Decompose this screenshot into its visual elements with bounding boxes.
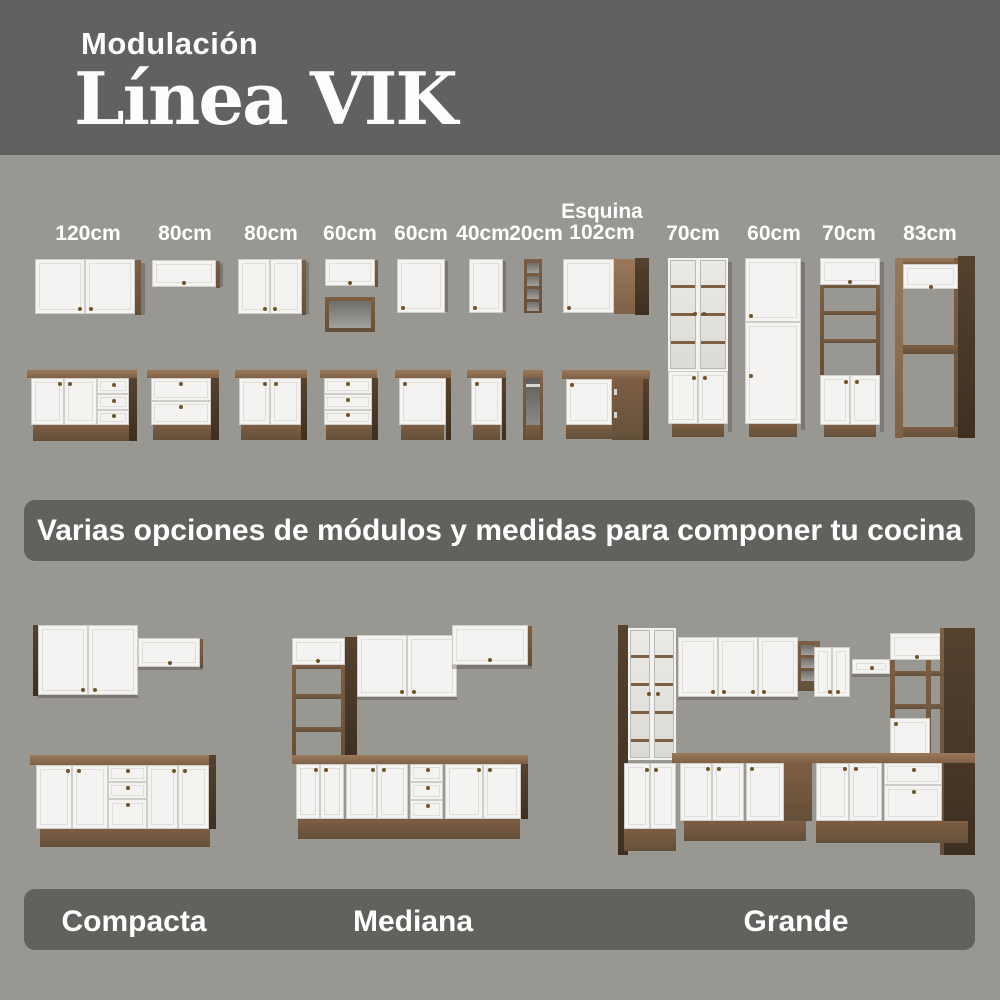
- knob: [762, 690, 766, 694]
- knob: [346, 398, 350, 402]
- knob: [567, 306, 571, 310]
- shadow: [452, 665, 532, 669]
- knob: [702, 312, 706, 316]
- knob: [717, 767, 721, 771]
- knob: [854, 767, 858, 771]
- shadow: [220, 263, 223, 287]
- wood-panel: [153, 425, 211, 440]
- tagline-text: Varias opciones de módulos y medidas par…: [24, 514, 975, 548]
- knob: [912, 768, 916, 772]
- wood-panel: [241, 425, 301, 440]
- knob: [722, 690, 726, 694]
- wood-panel: [824, 285, 876, 288]
- shadow: [880, 262, 884, 432]
- wood-panel: [523, 370, 543, 378]
- knob: [324, 768, 328, 772]
- wood-panel: [931, 704, 944, 709]
- wood-panel: [784, 763, 812, 821]
- cabinet-door: [563, 259, 614, 313]
- cabinet-door: [270, 259, 302, 314]
- knob: [488, 658, 492, 662]
- wood-panel: [931, 671, 944, 676]
- wood-panel: [526, 425, 540, 440]
- knob: [172, 769, 176, 773]
- cabinet-door: [377, 764, 408, 819]
- wood-panel: [467, 370, 506, 378]
- opening: [527, 302, 539, 311]
- knob: [848, 280, 852, 284]
- cabinet-door: [680, 763, 712, 821]
- cabinet-door: [178, 765, 209, 829]
- knob: [656, 692, 660, 696]
- cabinet-drawer: [410, 782, 443, 800]
- cabinet-door: [407, 635, 457, 697]
- knob: [654, 768, 658, 772]
- wood-panel: [296, 727, 341, 732]
- knob: [273, 307, 277, 311]
- knob: [401, 306, 405, 310]
- knob: [929, 285, 933, 289]
- knob: [382, 768, 386, 772]
- wood-panel: [209, 755, 216, 829]
- kitchen-label-mediana: Mediana: [353, 905, 473, 939]
- cabinet-door: [346, 764, 377, 819]
- wood-panel: [502, 378, 506, 440]
- knob: [179, 405, 183, 409]
- knob: [263, 307, 267, 311]
- cabinet-door: [816, 763, 849, 821]
- knob: [828, 690, 832, 694]
- cabinet-door: [745, 258, 801, 322]
- knob: [750, 767, 754, 771]
- knob: [912, 790, 916, 794]
- opening: [527, 276, 539, 286]
- knob: [58, 382, 62, 386]
- cabinet-door: [483, 764, 521, 819]
- wood-panel: [566, 425, 612, 439]
- cabinet-door: [147, 765, 178, 829]
- knob: [126, 786, 130, 790]
- knob: [426, 804, 430, 808]
- shadow: [306, 262, 309, 314]
- cabinet-drawer: [108, 765, 147, 782]
- cabinet-drawer: [324, 378, 372, 394]
- wood-panel: [200, 639, 203, 668]
- wood-panel: [684, 821, 806, 841]
- wood-panel: [401, 425, 444, 440]
- shadow: [678, 697, 798, 700]
- knob: [93, 688, 97, 692]
- wood-panel: [296, 694, 341, 699]
- shadow: [357, 697, 457, 700]
- knob: [274, 382, 278, 386]
- knob: [314, 768, 318, 772]
- opening: [329, 301, 371, 328]
- knob: [68, 382, 72, 386]
- wood-panel: [528, 626, 532, 666]
- wood-panel: [824, 339, 876, 343]
- cabinet-door: [758, 637, 798, 697]
- wood-panel: [672, 424, 724, 437]
- knob: [77, 769, 81, 773]
- cabinet-door: [650, 763, 676, 829]
- knob: [66, 769, 70, 773]
- shadow: [728, 262, 732, 432]
- wood-panel: [40, 829, 210, 847]
- wood-panel: [521, 764, 528, 819]
- opening: [527, 289, 539, 299]
- cabinet-door: [72, 765, 108, 829]
- wood-panel: [301, 378, 307, 440]
- wood-panel: [895, 671, 926, 676]
- shadow: [138, 667, 203, 670]
- knob: [400, 690, 404, 694]
- knob: [316, 659, 320, 663]
- wood-panel: [446, 378, 451, 440]
- knob: [894, 722, 898, 726]
- wood-panel: [296, 665, 341, 669]
- wood-panel: [292, 665, 296, 760]
- cabinet-door: [85, 259, 135, 314]
- wood-panel: [958, 256, 975, 438]
- cabinet-door: [678, 637, 718, 697]
- knob: [836, 690, 840, 694]
- wood-panel: [33, 425, 129, 441]
- knob: [843, 767, 847, 771]
- wood-panel: [824, 425, 876, 437]
- knob: [112, 399, 116, 403]
- wood-panel: [345, 637, 357, 760]
- towel-rail: [526, 384, 540, 387]
- shadow: [38, 695, 138, 698]
- knob: [692, 376, 696, 380]
- cabinet-drawer: [884, 763, 942, 785]
- wood-panel: [672, 753, 812, 763]
- wood-panel: [211, 378, 219, 440]
- wood-panel: [27, 370, 137, 378]
- wood-panel: [235, 370, 307, 378]
- knob: [711, 690, 715, 694]
- cabinet-door: [718, 637, 758, 697]
- knob: [693, 312, 697, 316]
- knob: [346, 413, 350, 417]
- knob: [475, 382, 479, 386]
- knob: [870, 666, 874, 670]
- wood-panel: [292, 755, 528, 764]
- knob: [263, 382, 267, 386]
- towel-rail: [614, 389, 617, 395]
- knob: [570, 383, 574, 387]
- wood-panel: [749, 424, 797, 437]
- cabinet-door: [397, 259, 445, 313]
- wood-panel: [816, 821, 968, 843]
- knob: [371, 768, 375, 772]
- shadow: [503, 261, 506, 312]
- poster: Modulación Línea VIK 120cm 80cm 80cm 60c…: [0, 0, 1000, 1000]
- knob: [183, 769, 187, 773]
- cabinet-door: [624, 763, 650, 829]
- knob: [426, 768, 430, 772]
- knob: [473, 306, 477, 310]
- cabinet-door: [357, 635, 407, 697]
- wood-panel: [810, 753, 975, 763]
- cabinet-drawer: [410, 800, 443, 819]
- cabinet-door: [445, 764, 483, 819]
- knob: [348, 281, 352, 285]
- cabinet-door: [746, 763, 784, 821]
- shadow: [141, 263, 145, 315]
- wood-panel: [372, 378, 378, 440]
- shadow: [852, 674, 890, 677]
- knob: [749, 374, 753, 378]
- knob: [703, 376, 707, 380]
- wood-panel: [624, 829, 676, 851]
- knob: [179, 382, 183, 386]
- kitchen-label-compacta: Compacta: [61, 905, 206, 939]
- knob: [915, 655, 919, 659]
- knob: [403, 382, 407, 386]
- knob: [182, 281, 186, 285]
- knob: [112, 414, 116, 418]
- wood-panel: [820, 285, 824, 375]
- knob: [488, 768, 492, 772]
- knob: [855, 380, 859, 384]
- wood-panel: [903, 345, 958, 354]
- cabinet-door: [296, 764, 320, 819]
- wood-panel: [320, 370, 377, 378]
- wood-panel: [375, 260, 378, 287]
- cabinet-drawer: [324, 394, 372, 410]
- knob: [126, 803, 130, 807]
- wood-panel: [473, 425, 500, 440]
- towel-rail: [614, 412, 617, 418]
- knob: [645, 768, 649, 772]
- cabinet-door: [38, 625, 88, 695]
- knob: [112, 383, 116, 387]
- wood-panel: [395, 370, 451, 378]
- wood-panel: [635, 258, 649, 315]
- knob: [477, 768, 481, 772]
- wood-panel: [326, 425, 372, 440]
- wood-panel: [903, 427, 958, 437]
- wood-panel: [643, 379, 649, 440]
- cabinet-door: [745, 322, 801, 424]
- shadow: [445, 261, 448, 312]
- kitchen-label-grande: Grande: [743, 905, 848, 939]
- wood-panel: [540, 378, 543, 440]
- knob: [81, 688, 85, 692]
- knob: [126, 769, 130, 773]
- opening: [527, 263, 539, 273]
- knob: [89, 307, 93, 311]
- wood-panel: [147, 370, 219, 378]
- cabinet-door: [832, 647, 850, 697]
- cabinet-drawer: [410, 764, 443, 782]
- cabinet-door: [712, 763, 744, 821]
- knob: [844, 380, 848, 384]
- cabinet-door: [320, 764, 344, 819]
- cabinet-door: [849, 763, 882, 821]
- knob: [78, 307, 82, 311]
- knob: [412, 690, 416, 694]
- cabinet-door: [36, 765, 72, 829]
- wood-panel: [895, 258, 903, 438]
- cabinet-drawer: [108, 782, 147, 799]
- wood-panel: [562, 370, 650, 379]
- wood-panel: [30, 755, 216, 765]
- wood-panel: [298, 819, 520, 839]
- knob: [426, 786, 430, 790]
- knob: [168, 661, 172, 665]
- wood-panel: [129, 378, 137, 441]
- cabinet-door: [238, 259, 270, 314]
- knob: [647, 692, 651, 696]
- wood-panel: [895, 704, 926, 709]
- knob: [346, 382, 350, 386]
- knob: [751, 690, 755, 694]
- wood-panel: [824, 311, 876, 315]
- wood-panel: [614, 259, 635, 314]
- knob: [749, 314, 753, 318]
- cabinet-door: [469, 259, 503, 313]
- cabinet-door: [88, 625, 138, 695]
- tagline-banner: Varias opciones de módulos y medidas par…: [24, 500, 975, 561]
- shadow: [801, 262, 805, 430]
- cabinet-door: [35, 259, 85, 314]
- knob: [706, 767, 710, 771]
